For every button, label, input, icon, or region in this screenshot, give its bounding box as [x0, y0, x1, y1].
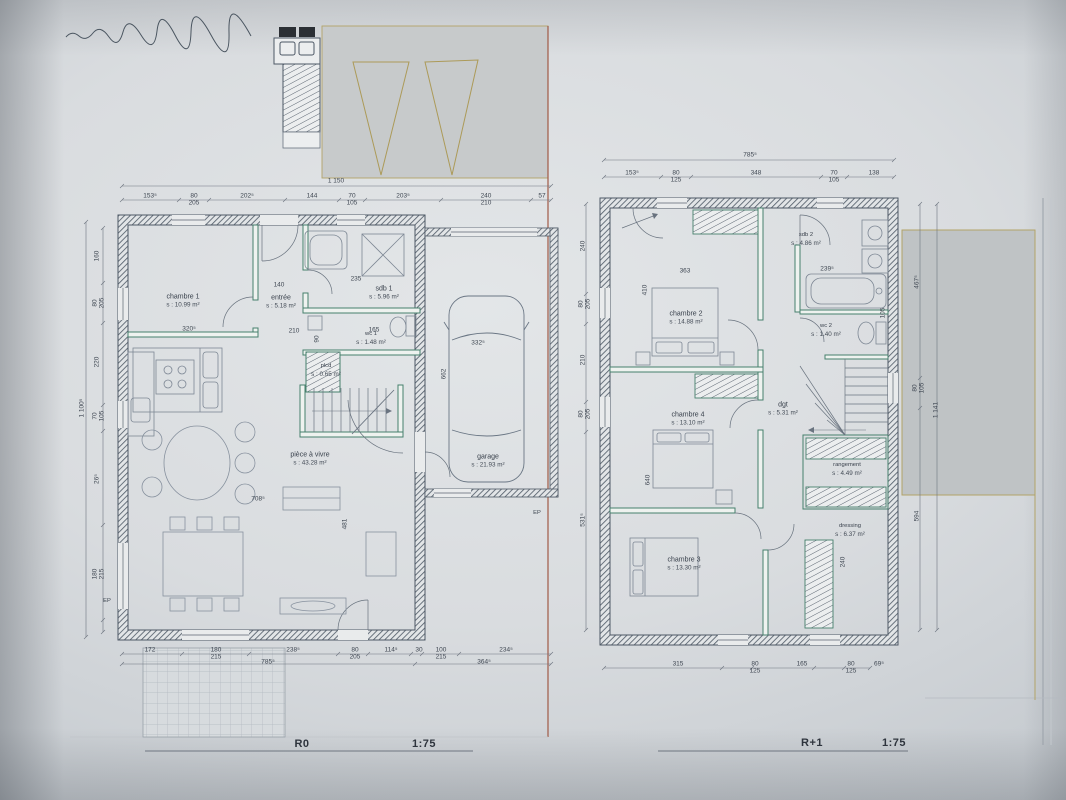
- room-label-plcd: plcd s : 0.65 m²: [311, 363, 341, 379]
- dimension-label: 235: [351, 275, 362, 282]
- room-name: sdb 1: [369, 284, 399, 293]
- shower-sdb1: [362, 234, 404, 276]
- vanity-sdb2: [862, 220, 888, 273]
- room-area: s : 14.88 m²: [669, 318, 702, 326]
- room-name: garage: [471, 452, 504, 461]
- room-area: s : 4.49 m²: [832, 470, 862, 478]
- dimension-label: 785⁵: [261, 658, 275, 665]
- room-name: dgt: [768, 400, 798, 409]
- bed-chambre1: [133, 348, 222, 412]
- room-area: s : 13.30 m²: [667, 564, 700, 572]
- dimension-label: 57: [538, 192, 545, 199]
- dimension-label: 234⁵: [499, 646, 513, 653]
- dimension-label: 80 105: [912, 383, 927, 394]
- dimension-label: 1 100⁵: [78, 399, 85, 418]
- dimension-label: 70 105: [347, 193, 358, 208]
- dimension-label: 531⁵: [579, 513, 586, 527]
- room-name: chambre 1: [166, 292, 199, 301]
- room-label-sdb1: sdb 1 s : 5.96 m²: [369, 284, 399, 301]
- living-furniture: [142, 422, 396, 614]
- dimension-label: 364⁵: [477, 658, 491, 665]
- dimension-label: 210: [579, 355, 586, 366]
- dimension-label: 467⁵: [913, 275, 920, 289]
- ep-marker: EP: [533, 510, 541, 516]
- bin-1: [279, 27, 296, 37]
- dimension-label: 30: [415, 646, 422, 653]
- dimension-label: 80 125: [671, 170, 682, 185]
- first-floor-plan: [584, 158, 939, 751]
- dimension-label: 239⁵: [820, 265, 834, 272]
- room-name: pièce à vivre: [290, 450, 329, 459]
- room-area: s : 21.93 m²: [471, 461, 504, 469]
- room-label-chambre-2: chambre 2 s : 14.88 m²: [669, 309, 702, 326]
- room-label-entree: entrée s : 5.18 m²: [266, 293, 296, 310]
- terrain-line: [66, 14, 251, 52]
- room-area: s : 13.10 m²: [671, 419, 704, 427]
- wardrobes: [693, 210, 886, 628]
- dimension-label: 165: [797, 660, 808, 667]
- dimension-label: 662: [440, 369, 447, 380]
- dimension-label: 240: [839, 557, 846, 568]
- dimension-label: 785⁵: [743, 151, 757, 158]
- dimension-label: 1 150: [328, 177, 344, 184]
- room-area: s : 5.18 m²: [266, 302, 296, 310]
- dimension-label: 594: [913, 511, 920, 522]
- room-name: sdb 2: [791, 232, 821, 240]
- openings: [118, 215, 537, 640]
- dimension-label: 80 205: [189, 193, 200, 208]
- dimension-label: 315: [673, 660, 684, 667]
- room-area: s : 6.37 m²: [835, 531, 865, 539]
- room-label-rangement: rangement s : 4.49 m²: [832, 462, 862, 478]
- plan-title-r0: R0: [294, 738, 309, 750]
- dimension-label: 240: [579, 241, 586, 252]
- dimension-label: 180 215: [211, 647, 222, 662]
- room-name: rangement: [832, 462, 862, 470]
- dimension-label: 203⁵: [396, 192, 410, 199]
- bathtub-sdb1: [305, 231, 347, 269]
- dimension-label: 90: [313, 335, 320, 342]
- dimension-label: 348: [751, 169, 762, 176]
- room-label-dressing: dressing s : 6.37 m²: [835, 523, 865, 539]
- kitchen: [128, 352, 194, 436]
- dimension-label: 220: [93, 357, 100, 368]
- room-label-wc2: wc 2 s : 1.40 m²: [811, 323, 841, 339]
- dimension-label: 481: [341, 519, 348, 530]
- bin-2: [299, 27, 315, 37]
- dimension-label: 1 141: [932, 402, 939, 418]
- room-label-garage: garage s : 21.93 m²: [471, 452, 504, 469]
- dimension-label: 320⁵: [182, 325, 196, 332]
- dimension-label: 172: [145, 646, 156, 653]
- bed-chambre4: [653, 430, 732, 504]
- dimension-label: 202⁵: [240, 192, 254, 199]
- dimension-label: 80 125: [846, 661, 857, 676]
- dimension-label: 70 105: [92, 411, 107, 422]
- dimension-label: 80 125: [750, 661, 761, 676]
- room-label-sdb2: sdb 2 s : 4.86 m²: [791, 232, 821, 248]
- dimension-label: 640: [644, 475, 651, 486]
- dimension-label: 138: [869, 169, 880, 176]
- dimension-label: 363: [680, 267, 691, 274]
- dimension-label: 80 205: [578, 299, 593, 310]
- stairs-upper: [800, 359, 888, 435]
- bathtub-sdb2: [806, 274, 886, 308]
- room-name: chambre 3: [667, 555, 700, 564]
- dimension-label: 105: [879, 308, 886, 319]
- dimension-label: 410: [641, 285, 648, 296]
- dimension-label: 332⁵: [471, 339, 485, 346]
- plan-title-r1: R+1: [801, 737, 823, 749]
- room-area: s : 1.40 m²: [811, 331, 841, 339]
- dimension-label: 240 210: [481, 193, 492, 208]
- porch-wall: [283, 64, 320, 132]
- plan-scale-r0: 1:75: [412, 738, 436, 750]
- room-label-dgt: dgt s : 5.31 m²: [768, 400, 798, 417]
- room-area: s : 43.28 m²: [290, 459, 329, 467]
- floor-plan-sheet: chambre 1 s : 10.99 m² entrée s : 5.18 m…: [0, 0, 1066, 800]
- partitions: [610, 208, 888, 635]
- dimension-label: 114⁵: [384, 646, 397, 653]
- adjacent-roof: [902, 230, 1035, 495]
- dimension-label: 140: [274, 281, 285, 288]
- room-label-chambre-1: chambre 1 s : 10.99 m²: [166, 292, 199, 309]
- room-name: chambre 2: [669, 309, 702, 318]
- room-name: wc 2: [811, 323, 841, 331]
- dimension-label: 70 105: [829, 170, 840, 185]
- dimension-label: 80 205: [350, 647, 361, 662]
- dimension-label: 180 215: [92, 569, 107, 580]
- dimension-label: 153⁵: [143, 192, 157, 199]
- room-name: entrée: [266, 293, 296, 302]
- plan-linework: [0, 0, 1066, 800]
- plan-scale-r1: 1:75: [882, 737, 906, 749]
- dimension-label: 160: [93, 251, 100, 262]
- dimension-label: 210: [289, 327, 300, 334]
- room-area: s : 5.31 m²: [768, 409, 798, 417]
- dimension-label: 69⁵: [874, 660, 884, 667]
- dimension-label: 144: [307, 192, 318, 199]
- stairs-ground: [312, 388, 394, 434]
- toilet-wc2: [858, 322, 886, 344]
- room-area: s : 5.96 m²: [369, 293, 399, 301]
- room-label-piece-a-vivre: pièce à vivre s : 43.28 m²: [290, 450, 329, 467]
- room-area: s : 0.65 m²: [311, 371, 341, 379]
- room-area: s : 1.48 m²: [356, 339, 386, 347]
- room-name: chambre 4: [671, 410, 704, 419]
- room-label-chambre-4: chambre 4 s : 13.10 m²: [671, 410, 704, 427]
- room-area: s : 10.99 m²: [166, 301, 199, 309]
- dimension-label: 26⁵: [93, 474, 100, 484]
- dimension-label: 153⁵: [625, 169, 639, 176]
- dimension-label: 165: [369, 326, 380, 333]
- dimension-label: 80 205: [578, 409, 593, 420]
- room-name: plcd: [311, 363, 341, 371]
- room-name: dressing: [835, 523, 865, 531]
- ep-marker: EP: [103, 598, 111, 604]
- dimension-label: 100 215: [436, 647, 447, 662]
- room-area: s : 4.86 m²: [791, 240, 821, 248]
- dimension-label: 708⁵: [251, 495, 265, 502]
- dimension-label: 80 205: [92, 298, 107, 309]
- room-label-chambre-3: chambre 3 s : 13.30 m²: [667, 555, 700, 572]
- dimension-label: 238⁵: [286, 646, 300, 653]
